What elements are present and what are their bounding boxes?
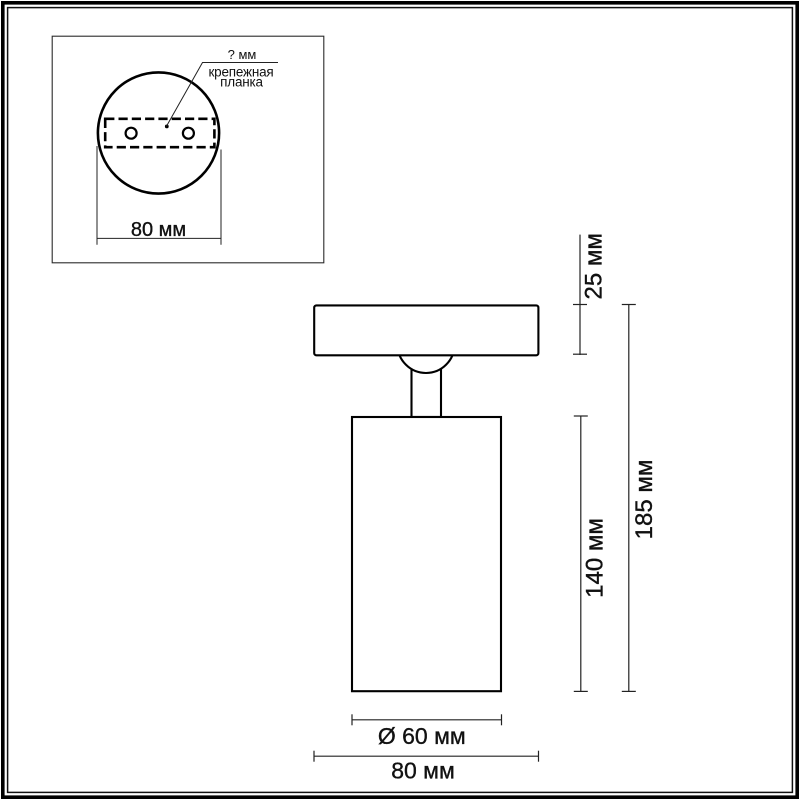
svg-text:Ø 60 мм: Ø 60 мм	[378, 723, 466, 749]
svg-text:80 мм: 80 мм	[391, 758, 455, 784]
svg-text:25 мм: 25 мм	[581, 233, 608, 299]
svg-text:? мм: ? мм	[228, 47, 257, 62]
svg-text:80 мм: 80 мм	[131, 219, 186, 241]
svg-text:140 мм: 140 мм	[581, 518, 608, 598]
svg-text:185 мм: 185 мм	[631, 460, 658, 540]
svg-text:планка: планка	[220, 75, 263, 90]
